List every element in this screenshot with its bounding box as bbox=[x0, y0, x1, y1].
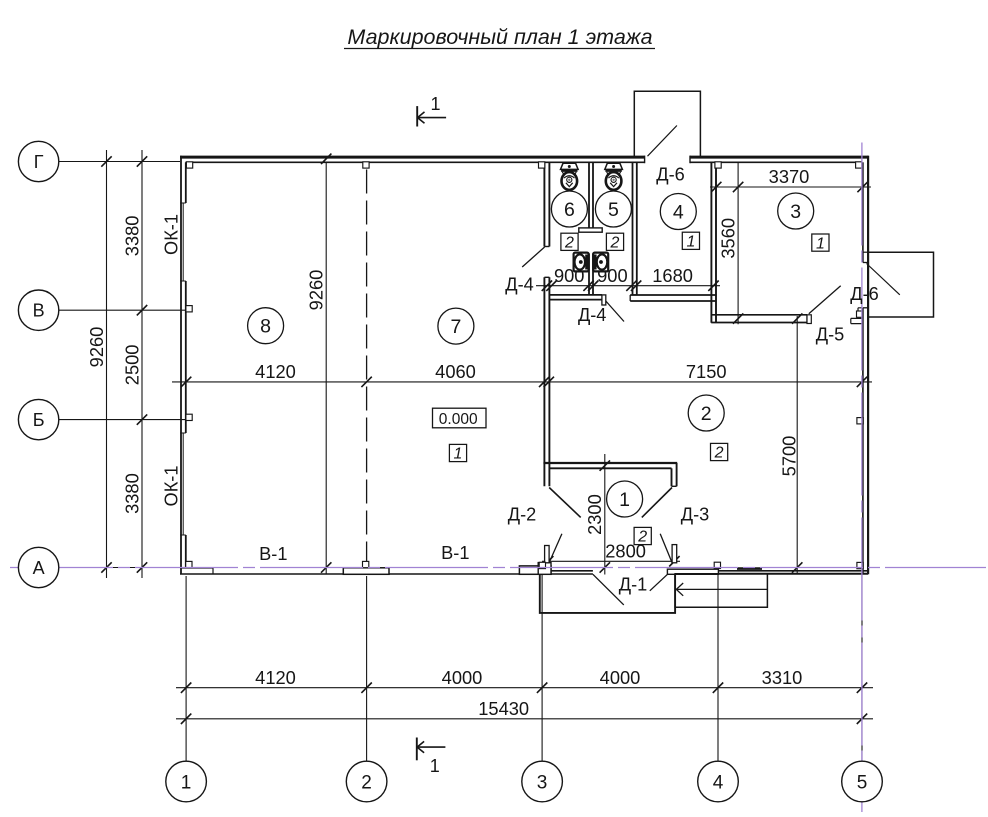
svg-text:4120: 4120 bbox=[255, 667, 296, 688]
svg-text:1: 1 bbox=[181, 772, 192, 793]
svg-text:3310: 3310 bbox=[762, 667, 803, 688]
svg-text:3380: 3380 bbox=[122, 473, 143, 514]
svg-text:Д-4: Д-4 bbox=[578, 305, 607, 325]
svg-text:2: 2 bbox=[637, 529, 647, 546]
svg-text:1: 1 bbox=[619, 489, 630, 511]
svg-text:4: 4 bbox=[713, 772, 724, 793]
svg-text:Д-6: Д-6 bbox=[656, 165, 685, 185]
svg-text:3: 3 bbox=[790, 201, 801, 223]
svg-text:2: 2 bbox=[714, 445, 724, 462]
svg-text:2: 2 bbox=[361, 772, 372, 793]
svg-text:1680: 1680 bbox=[652, 265, 693, 286]
svg-text:9260: 9260 bbox=[306, 270, 327, 311]
svg-text:6: 6 bbox=[564, 199, 575, 221]
svg-text:В-1: В-1 bbox=[441, 543, 469, 563]
svg-text:1: 1 bbox=[430, 94, 440, 114]
svg-text:0.000: 0.000 bbox=[439, 411, 478, 428]
svg-text:4: 4 bbox=[673, 201, 684, 223]
svg-text:1: 1 bbox=[454, 446, 463, 463]
svg-text:В-1: В-1 bbox=[259, 544, 287, 564]
svg-text:Г: Г bbox=[34, 152, 44, 172]
svg-text:4120: 4120 bbox=[255, 361, 296, 382]
svg-text:3370: 3370 bbox=[769, 166, 810, 187]
svg-text:Д-2: Д-2 bbox=[508, 505, 537, 525]
svg-text:3380: 3380 bbox=[122, 216, 143, 257]
svg-text:Д-6: Д-6 bbox=[850, 284, 879, 304]
svg-text:4000: 4000 bbox=[600, 667, 641, 688]
svg-text:2: 2 bbox=[610, 235, 620, 252]
svg-text:2500: 2500 bbox=[122, 345, 143, 386]
svg-text:4060: 4060 bbox=[435, 361, 476, 382]
svg-text:Б: Б bbox=[33, 410, 45, 430]
svg-text:Маркировочный план 1 этажа: Маркировочный план 1 этажа bbox=[347, 25, 652, 49]
svg-text:ОК-1: ОК-1 bbox=[161, 466, 181, 507]
svg-text:Д-5: Д-5 bbox=[816, 325, 845, 345]
svg-text:15430: 15430 bbox=[478, 698, 529, 719]
svg-text:1: 1 bbox=[430, 756, 440, 776]
svg-text:7: 7 bbox=[450, 316, 461, 338]
svg-text:Д-3: Д-3 bbox=[681, 505, 710, 525]
svg-text:1: 1 bbox=[686, 234, 695, 251]
svg-text:5: 5 bbox=[857, 772, 868, 793]
svg-text:8: 8 bbox=[260, 316, 271, 338]
svg-text:3: 3 bbox=[537, 772, 548, 793]
svg-text:5700: 5700 bbox=[779, 436, 800, 477]
svg-text:ОК-1: ОК-1 bbox=[161, 214, 181, 255]
svg-text:Д-4: Д-4 bbox=[505, 275, 534, 295]
svg-text:А: А bbox=[33, 558, 45, 578]
svg-text:1: 1 bbox=[816, 235, 825, 252]
svg-text:9260: 9260 bbox=[86, 327, 107, 368]
svg-text:3560: 3560 bbox=[718, 218, 739, 259]
svg-text:5: 5 bbox=[608, 199, 619, 221]
svg-text:Д-1: Д-1 bbox=[619, 575, 648, 595]
svg-text:2: 2 bbox=[564, 235, 574, 252]
svg-text:7150: 7150 bbox=[686, 361, 727, 382]
svg-text:В: В bbox=[33, 301, 45, 321]
svg-text:4000: 4000 bbox=[442, 667, 483, 688]
svg-text:2300: 2300 bbox=[584, 494, 605, 535]
svg-text:2: 2 bbox=[701, 403, 712, 425]
